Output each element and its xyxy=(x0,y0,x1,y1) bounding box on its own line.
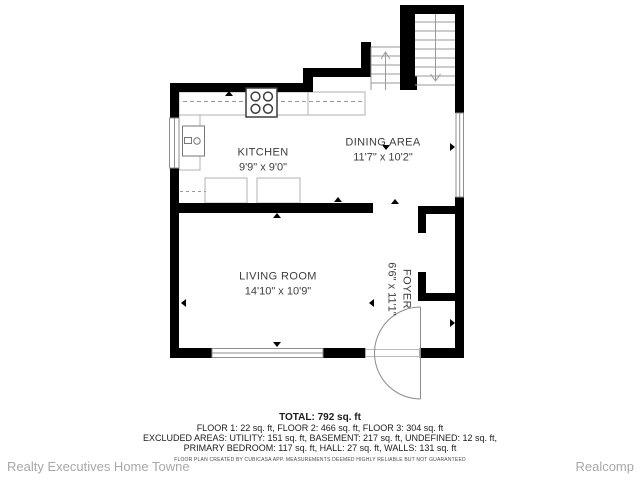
room-name: LIVING ROOM xyxy=(239,271,317,283)
base-cabinet-1 xyxy=(205,178,247,203)
stove-burner xyxy=(251,104,260,113)
stove-burner xyxy=(264,92,273,101)
room-name: FOYER xyxy=(401,262,413,315)
room-label-dining-area: DINING AREA 11'7" x 10'2" xyxy=(345,137,420,164)
room-label-kitchen: KITCHEN 9'9" x 9'0" xyxy=(237,147,288,174)
room-label-living-room: LIVING ROOM 14'10" x 10'9" xyxy=(239,271,317,298)
closet-wall-left-upper xyxy=(418,206,426,233)
dimension-tick xyxy=(450,319,455,327)
wall-right-lower xyxy=(455,197,464,358)
room-name: DINING AREA xyxy=(345,137,420,149)
dimension-tick xyxy=(450,143,455,151)
wall-stairs-left-foot xyxy=(400,76,417,90)
staircase-main xyxy=(415,14,455,85)
entry-door xyxy=(366,307,421,399)
room-dimensions: 14'10" x 10'9" xyxy=(239,286,317,298)
stove-body xyxy=(246,88,277,117)
closet-wall-left-lower xyxy=(418,272,426,301)
door-swing-arc xyxy=(375,307,421,399)
wall-right-upper xyxy=(455,5,464,113)
area-summary: TOTAL: 792 sq. ft FLOOR 1: 22 sq. ft, FL… xyxy=(0,412,640,463)
dimension-ticks xyxy=(181,91,455,347)
wall-dining-top xyxy=(303,68,371,77)
floor-areas: FLOOR 1: 22 sq. ft, FLOOR 2: 466 sq. ft,… xyxy=(0,423,640,433)
dimension-tick xyxy=(369,299,374,307)
total-area: TOTAL: 792 sq. ft xyxy=(0,412,640,423)
dimension-tick xyxy=(334,197,342,202)
dimension-tick xyxy=(391,199,399,204)
floor-plan-page: KITCHEN 9'9" x 9'0" DINING AREA 11'7" x … xyxy=(0,0,640,480)
wall-stairs-top xyxy=(400,5,464,14)
room-dimensions: 9'9" x 9'0" xyxy=(237,162,288,174)
floor-plan-drawing xyxy=(0,0,640,480)
staircase-landing xyxy=(371,47,400,90)
room-label-foyer: FOYER 6'6" x 11'1" xyxy=(386,262,413,315)
mls-watermark: Realcomp xyxy=(575,459,634,474)
wall-bottom-right xyxy=(420,348,464,358)
room-dimensions: 6'6" x 11'1" xyxy=(386,262,398,315)
wall-interior-divider xyxy=(170,203,373,213)
brokerage-watermark: Realty Executives Home Towne xyxy=(7,459,190,474)
wall-kitchen-top xyxy=(170,83,313,92)
dimension-tick xyxy=(273,342,281,347)
dimension-tick xyxy=(273,213,281,218)
wall-landing-left xyxy=(361,42,371,77)
sink-faucet xyxy=(185,138,192,144)
stove xyxy=(246,88,277,117)
excluded-areas-2: PRIMARY BEDROOM: 117 sq. ft, HALL: 27 sq… xyxy=(0,443,640,453)
stove-burner xyxy=(264,104,273,113)
sink-unit xyxy=(183,126,205,156)
room-dimensions: 11'7" x 10'2" xyxy=(345,152,420,164)
room-name: KITCHEN xyxy=(237,147,288,159)
dimension-tick xyxy=(181,299,186,307)
base-cabinet-2 xyxy=(257,178,300,203)
excluded-areas-1: EXCLUDED AREAS: UTILITY: 151 sq. ft, BAS… xyxy=(0,433,640,443)
stove-burner xyxy=(251,92,260,101)
